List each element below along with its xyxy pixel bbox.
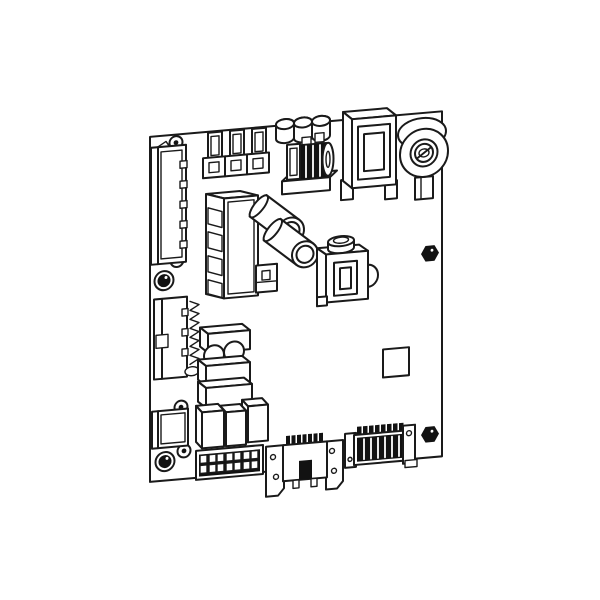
mount-bracket [266, 445, 284, 497]
edge-connector-top-left [151, 145, 187, 265]
coil-clamp [287, 144, 300, 180]
connector-pin [180, 241, 187, 249]
component-stack [198, 323, 252, 409]
bracket-foot [405, 460, 417, 468]
screw-head [156, 451, 175, 472]
screw-head [155, 270, 174, 291]
terminal-strip [196, 445, 263, 480]
transformer-foot [317, 296, 327, 306]
coil-tab [315, 133, 324, 143]
connector-pin [180, 181, 187, 189]
connector-pin [180, 201, 187, 209]
top-capacitor [276, 118, 294, 144]
connector-pin [182, 309, 188, 317]
edge-connector-mid-left [154, 297, 188, 380]
connector-pin [180, 161, 187, 169]
connector-pin [182, 329, 188, 337]
mount-bracket [326, 440, 343, 489]
edge-connector-low-left [152, 409, 188, 449]
figure-canvas [0, 0, 600, 600]
buzzer-leg [415, 176, 433, 200]
connector-pin [180, 221, 187, 229]
ic-footprint [383, 347, 409, 377]
pcb-technical-drawing [0, 0, 600, 600]
connector-pin [182, 349, 188, 357]
relay-bank [196, 398, 268, 449]
